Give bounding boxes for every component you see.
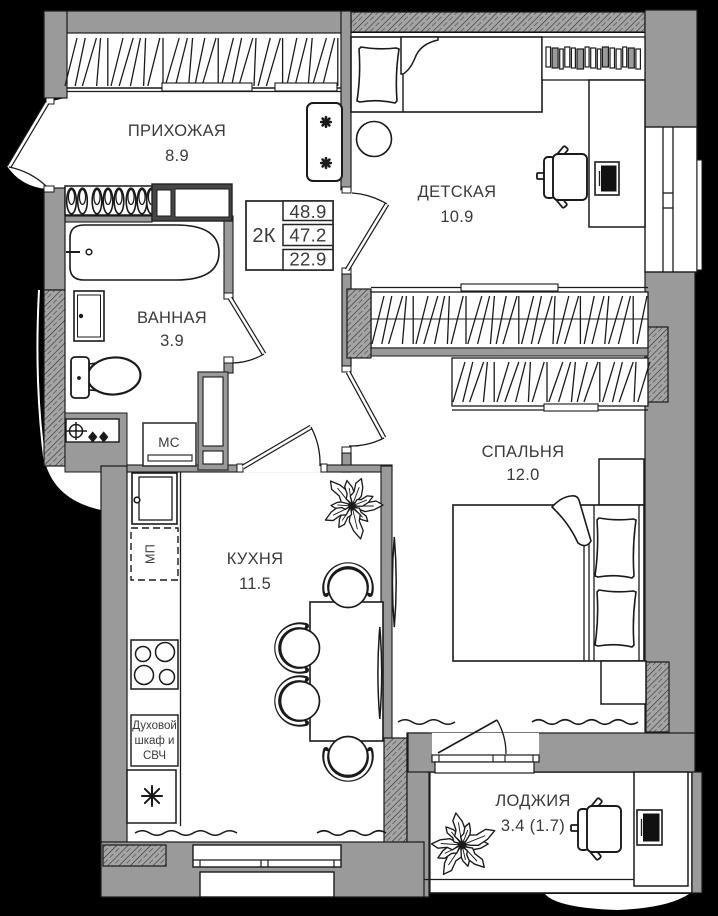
svg-text:Духовой: Духовой	[132, 720, 177, 732]
svg-text:11.5: 11.5	[239, 575, 271, 593]
svg-text:47.2: 47.2	[289, 225, 326, 246]
svg-text:2К: 2К	[252, 225, 275, 247]
svg-text:МП: МП	[144, 544, 158, 564]
svg-text:ЛОДЖИЯ: ЛОДЖИЯ	[495, 792, 570, 810]
svg-text:8.9: 8.9	[165, 147, 189, 165]
svg-text:шкаф и: шкаф и	[135, 735, 175, 747]
svg-text:3.4 (1.7): 3.4 (1.7)	[501, 817, 565, 835]
svg-text:КУХНЯ: КУХНЯ	[227, 550, 284, 568]
svg-text:ВАННАЯ: ВАННАЯ	[137, 309, 207, 327]
svg-text:СПАЛЬНЯ: СПАЛЬНЯ	[482, 443, 565, 461]
svg-text:48.9: 48.9	[289, 201, 326, 222]
svg-text:ПРИХОЖАЯ: ПРИХОЖАЯ	[128, 122, 226, 140]
svg-text:22.9: 22.9	[289, 249, 326, 270]
svg-text:12.0: 12.0	[506, 466, 539, 484]
svg-text:10.9: 10.9	[440, 208, 473, 226]
svg-text:3.9: 3.9	[160, 332, 184, 350]
svg-text:СВЧ: СВЧ	[143, 750, 166, 762]
svg-text:ДЕТСКАЯ: ДЕТСКАЯ	[418, 183, 497, 201]
svg-text:МС: МС	[158, 435, 180, 450]
